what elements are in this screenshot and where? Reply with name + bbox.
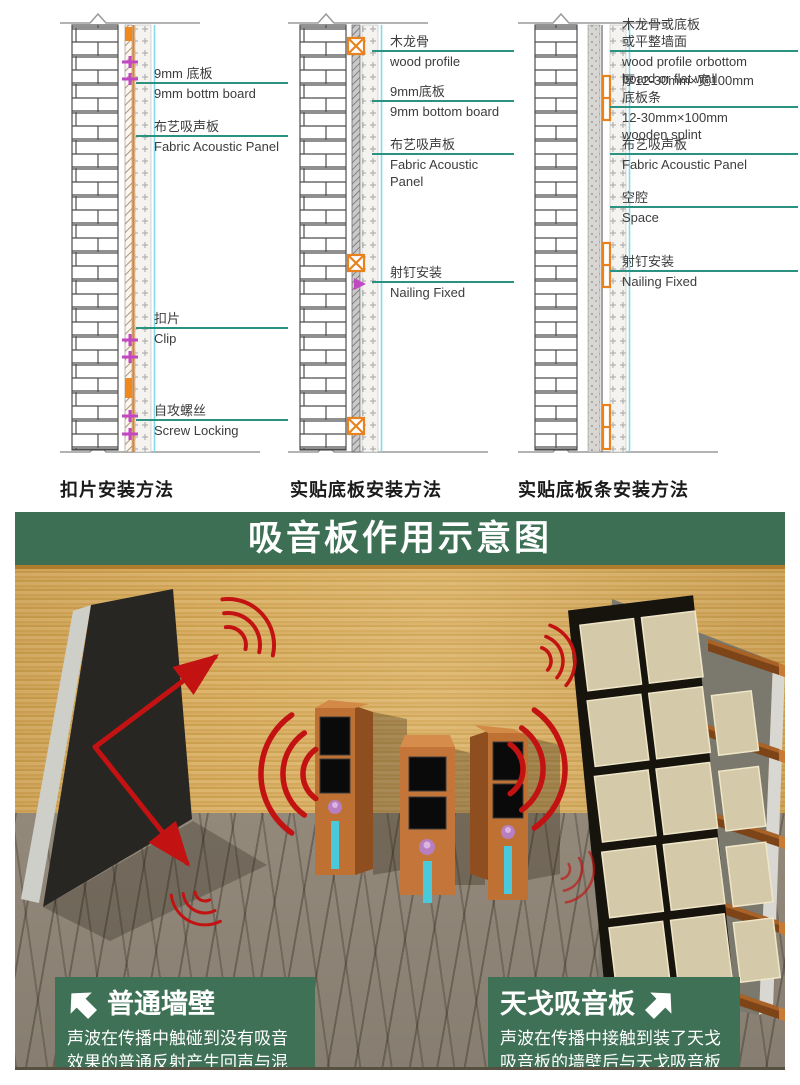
speaker-left bbox=[315, 700, 373, 875]
acoustic-panel-illustration: 吸音板作用示意图 bbox=[15, 512, 785, 1067]
diagram-caption: 实贴底板安装方法 bbox=[290, 476, 442, 502]
info-box-acoustic-panel: 天戈吸音板 声波在传播中接触到装了天戈吸音板的墙壁后与天戈吸音板内部细小微孔摩擦… bbox=[488, 977, 740, 1070]
layer-label: 9mm 底板 9mm bottm board bbox=[136, 65, 288, 102]
layer-label: 9mm底板 9mm bottom board bbox=[372, 83, 514, 120]
box-body: 声波在传播中接触到装了天戈吸音板的墙壁后与天戈吸音板内部细小微孔摩擦转化为热能，… bbox=[500, 1027, 728, 1070]
room-3d-render: 普通墙壁 声波在传播中触碰到没有吸音效果的普通反射产生回声与混响。 天戈吸音板 … bbox=[15, 569, 785, 1070]
layer-label: 射钉安装 Nailing Fixed bbox=[610, 253, 798, 290]
diagram-bottom-board-method: 木龙骨 wood profile 9mm底板 9mm bottom board … bbox=[288, 0, 516, 470]
page: 9mm 底板 9mm bottm board 布艺吸声板 Fabric Acou… bbox=[0, 0, 800, 1085]
box-title: 普通墙壁 bbox=[107, 987, 215, 1021]
illustration-title: 吸音板作用示意图 bbox=[15, 512, 785, 569]
diagram-splint-method: 木龙骨或底板 或平整墙面 wood profile orbottom board… bbox=[518, 0, 800, 470]
arrow-up-left-icon bbox=[61, 983, 103, 1025]
arrow-up-right-icon bbox=[639, 983, 681, 1025]
wall-section-drawing bbox=[288, 0, 516, 470]
info-box-ordinary-wall: 普通墙壁 声波在传播中触碰到没有吸音效果的普通反射产生回声与混响。 bbox=[55, 977, 315, 1070]
box-title: 天戈吸音板 bbox=[500, 987, 635, 1021]
layer-label: 厚12-30mm×宽100mm 底板条 12-30mm×100mm wooden… bbox=[610, 72, 798, 143]
layer-label: 空腔 Space bbox=[610, 189, 798, 226]
layer-label: 射钉安装 Nailing Fixed bbox=[372, 264, 514, 301]
layer-label: 自攻螺丝 Screw Locking bbox=[136, 402, 288, 439]
speaker-center bbox=[400, 735, 455, 903]
box-title-row: 天戈吸音板 bbox=[500, 987, 728, 1021]
diagram-clip-method: 9mm 底板 9mm bottm board 布艺吸声板 Fabric Acou… bbox=[60, 0, 290, 470]
diagram-caption: 扣片安装方法 bbox=[60, 476, 174, 502]
layer-label: 布艺吸声板 Fabric Acoustic Panel bbox=[136, 118, 288, 155]
layer-label: 布艺吸声板 Fabric Acoustic Panel bbox=[372, 136, 514, 190]
diagram-caption: 实贴底板条安装方法 bbox=[518, 476, 689, 502]
layer-label: 木龙骨 wood profile bbox=[372, 33, 514, 70]
box-body: 声波在传播中触碰到没有吸音效果的普通反射产生回声与混响。 bbox=[67, 1027, 303, 1070]
layer-label: 扣片 Clip bbox=[136, 310, 288, 347]
box-title-row: 普通墙壁 bbox=[67, 987, 303, 1021]
installation-diagrams-section: 9mm 底板 9mm bottm board 布艺吸声板 Fabric Acou… bbox=[0, 0, 800, 505]
layer-label: 布艺吸声板 Fabric Acoustic Panel bbox=[610, 136, 798, 173]
